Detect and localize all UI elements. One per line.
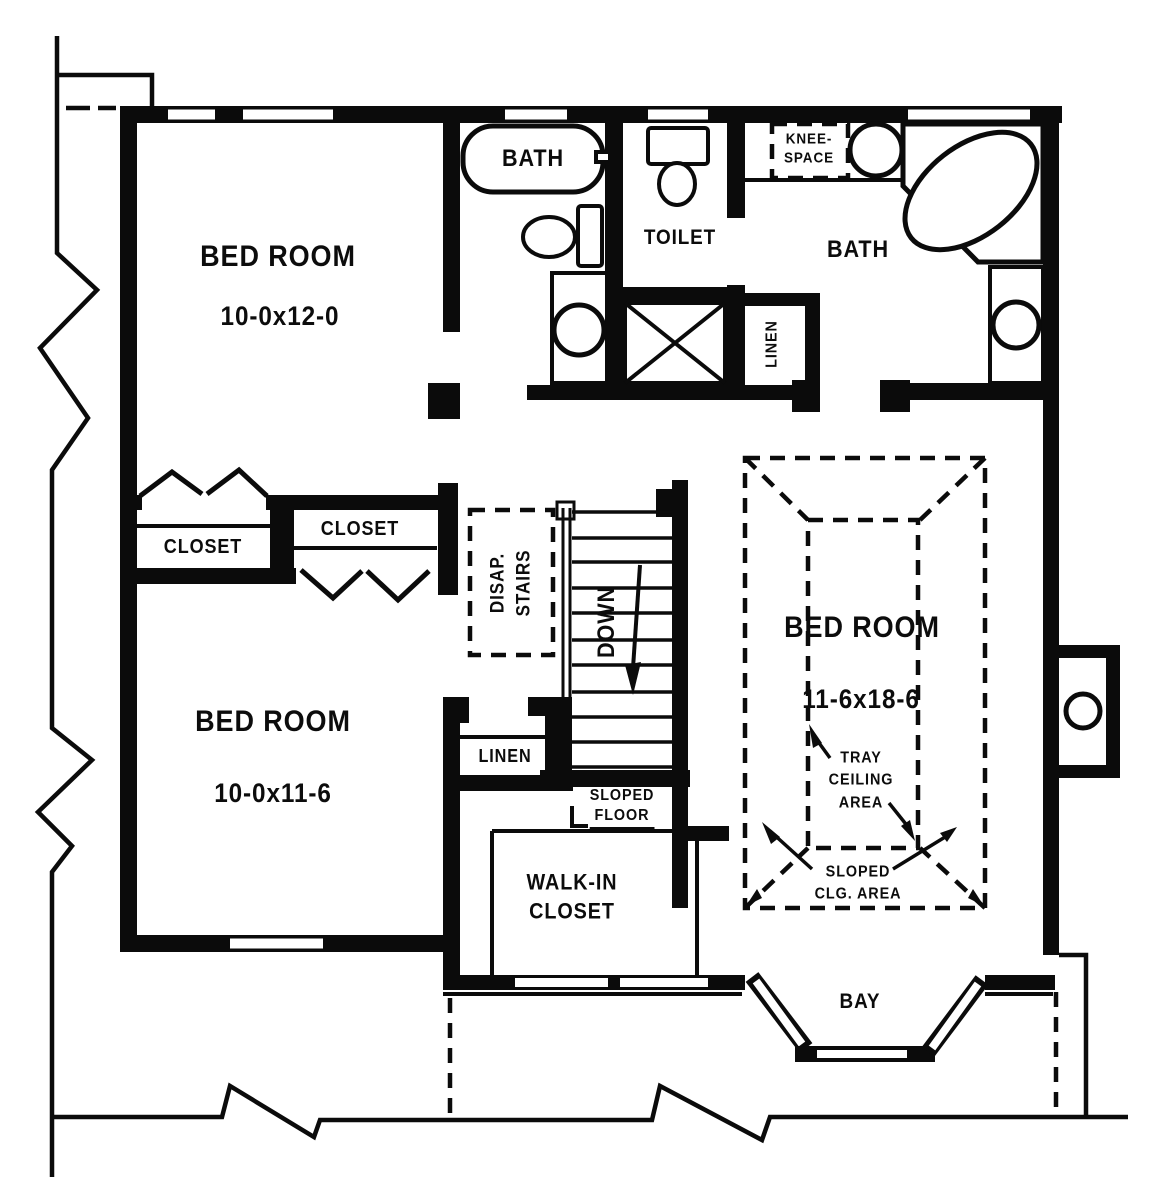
linen-master-label: LINEN <box>761 320 782 368</box>
bedroom3-label: BED ROOM <box>784 608 940 648</box>
toilet-icon-hall-bath <box>523 206 602 266</box>
sloped-floor-label: SLOPED FLOOR <box>590 786 655 830</box>
dashed-lines <box>450 124 1056 1113</box>
toilet-room-label: TOILET <box>644 224 716 252</box>
knee-space-label: KNEE- SPACE <box>784 130 834 168</box>
closet-right-label: CLOSET <box>321 516 399 542</box>
corner-tub-icon <box>883 109 1058 274</box>
sink-icon-hall-bath <box>554 305 604 355</box>
closet-left-label: CLOSET <box>164 534 242 560</box>
bedroom2-dims: 10-0x11-6 <box>214 776 332 812</box>
floor-plan: BED ROOM 10-0x12-0 BED ROOM 10-0x11-6 BE… <box>0 0 1150 1200</box>
sloped-ceiling-label: SLOPED CLG. AREA <box>815 861 902 904</box>
bedroom1-label: BED ROOM <box>200 237 356 277</box>
linen-hall-label: LINEN <box>478 745 531 769</box>
down-arrow-icon <box>625 565 641 695</box>
master-bath-label: BATH <box>827 234 889 266</box>
disappearing-stairs-label: DISAP. STAIRS <box>485 550 536 617</box>
bay-label: BAY <box>840 988 881 1016</box>
shower-icon <box>625 303 725 383</box>
walk-in-closet-label: WALK-IN CLOSET <box>527 868 618 925</box>
bedroom1-dims: 10-0x12-0 <box>221 299 340 335</box>
sink-icon-knee-space <box>850 124 902 176</box>
toilet-icon-toilet-room <box>648 128 708 205</box>
sink-icon-master-vanity <box>993 302 1039 348</box>
bathtub-label: BATH <box>502 143 564 175</box>
bedroom3-dims: 11-6x18-6 <box>802 682 920 718</box>
stairs-down-label: DOWN <box>591 586 623 658</box>
floor-plan-drawing <box>0 0 1150 1200</box>
chimney <box>1057 645 1120 778</box>
tray-ceiling-label: TRAY CEILING AREA <box>829 747 894 814</box>
bedroom2-label: BED ROOM <box>195 702 351 742</box>
